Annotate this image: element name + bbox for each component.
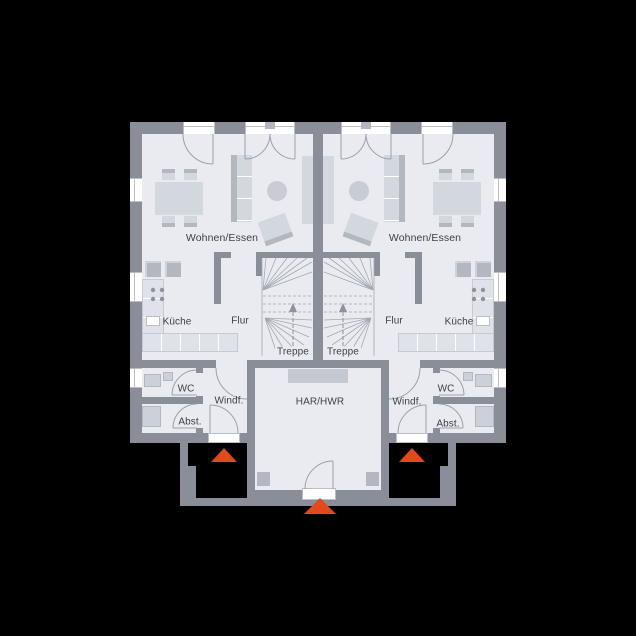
mid-wall-center (247, 360, 389, 368)
coffee-table (267, 181, 287, 201)
kitchen-counter (398, 333, 494, 352)
floor-plan: Wohnen/Essen Wohnen/Essen Küche Küche Fl… (0, 0, 636, 636)
utility-wall-bottom (336, 490, 381, 498)
room-label-vestibule-left: Windf. (215, 396, 244, 407)
dining-chair (439, 169, 452, 180)
wc-storage-divider-right (440, 397, 495, 404)
utility-shelf (288, 369, 348, 383)
wall-bottom (428, 433, 506, 443)
wall-right (494, 202, 506, 272)
wc-sink (144, 374, 161, 387)
window (130, 272, 142, 302)
window (494, 368, 506, 388)
utility-wall-left (247, 360, 255, 506)
wall-bottom (130, 433, 208, 443)
room-label-storage-right: Abst. (436, 419, 459, 430)
wc-toilet (163, 372, 173, 381)
room-label-hall-right: Flur (385, 316, 403, 327)
wall-left (130, 202, 142, 272)
dining-chair (439, 216, 452, 227)
utility-block (366, 472, 379, 486)
utility-door-threshold (302, 488, 336, 500)
storage-shelf (475, 406, 494, 427)
coffee-table (349, 181, 369, 201)
kitchen-appliance (165, 261, 181, 277)
wc-storage-divider-left (141, 397, 196, 404)
wc-wall-left (196, 396, 203, 404)
kitchen-counter (472, 279, 494, 335)
dining-chair (184, 216, 197, 227)
dining-chair (184, 169, 197, 180)
room-label-stairs-left: Treppe (275, 347, 311, 358)
dining-table (155, 182, 203, 215)
window (494, 272, 506, 302)
kitchen-appliance (455, 261, 471, 277)
stair-side-wall-right (374, 252, 380, 276)
utility-wall-right (381, 360, 389, 506)
shelf-unit (384, 155, 405, 222)
wall-top (391, 122, 421, 134)
double-door-post (361, 122, 371, 129)
party-wall (313, 122, 323, 368)
porch-wall-right (448, 443, 456, 506)
wall-right (494, 302, 506, 368)
utility-wall-bottom (255, 490, 302, 498)
kitchen-appliance (145, 261, 161, 277)
wc-wall-right (433, 368, 440, 373)
utility-block (257, 472, 270, 486)
wall-left (130, 302, 142, 368)
shelf-unit (231, 155, 252, 222)
wc-wall-left (196, 428, 203, 433)
wc-wall-left (196, 368, 203, 373)
porch-step-left (188, 466, 196, 498)
stair-wall-cap-right (323, 252, 380, 258)
dining-chair (162, 216, 175, 227)
terrace-door-threshold (421, 122, 453, 134)
sideboard (323, 156, 334, 224)
dining-chair (461, 169, 474, 180)
room-label-utility: HAR/HWR (296, 397, 344, 408)
window (130, 178, 142, 202)
mid-wall-left (130, 360, 216, 368)
room-label-living-right: Wohnen/Essen (389, 232, 461, 244)
double-door-post (265, 122, 275, 129)
entrance-threshold-left (208, 433, 240, 443)
stair-side-wall-left (256, 252, 262, 276)
storage-shelf (142, 406, 161, 427)
wall-left (130, 122, 142, 178)
room-label-kitchen-left: Küche (163, 317, 192, 328)
mid-wall-right (420, 360, 506, 368)
entrance-threshold-right (396, 433, 428, 443)
dining-table (433, 182, 481, 215)
stair-wall-cap-left (256, 252, 313, 258)
room-label-hall-left: Flur (231, 316, 249, 327)
room-label-vestibule-right: Windf. (393, 397, 422, 408)
wc-wall-right (433, 396, 440, 404)
kitchen-appliance (475, 261, 491, 277)
kitchen-sink (476, 316, 490, 326)
kitchen-divider-left (214, 252, 221, 304)
window (494, 178, 506, 202)
window (130, 368, 142, 388)
room-label-living-left: Wohnen/Essen (186, 232, 258, 244)
kitchen-divider-right (415, 252, 422, 304)
wall-right (494, 122, 506, 178)
sideboard (302, 156, 313, 224)
porch-step-right (440, 466, 448, 498)
kitchen-counter (142, 279, 164, 335)
room-label-wc-right: WC (438, 384, 455, 395)
dining-chair (461, 216, 474, 227)
wc-toilet (463, 372, 473, 381)
entrance-porch-left (188, 443, 247, 498)
terrace-door-threshold (183, 122, 215, 134)
room-label-storage-left: Abst. (178, 417, 201, 428)
room-label-wc-left: WC (178, 384, 195, 395)
porch-wall-left (180, 443, 188, 506)
wall-top (215, 122, 245, 134)
wc-sink (475, 374, 492, 387)
dining-chair (162, 169, 175, 180)
room-label-kitchen-right: Küche (445, 317, 474, 328)
kitchen-counter (142, 333, 238, 352)
room-label-stairs-right: Treppe (325, 347, 361, 358)
kitchen-sink (146, 316, 160, 326)
